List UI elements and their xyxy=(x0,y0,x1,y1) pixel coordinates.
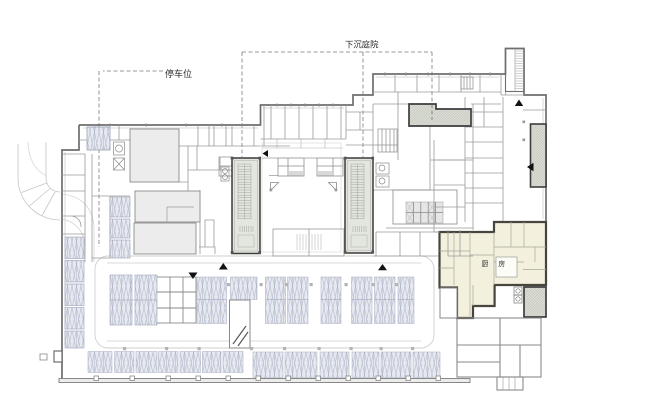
svg-text:厨: 厨 xyxy=(482,260,489,268)
svg-text:下沉庭院: 下沉庭院 xyxy=(345,40,379,50)
svg-text:停车位: 停车位 xyxy=(165,68,192,79)
svg-text:房: 房 xyxy=(498,259,505,268)
